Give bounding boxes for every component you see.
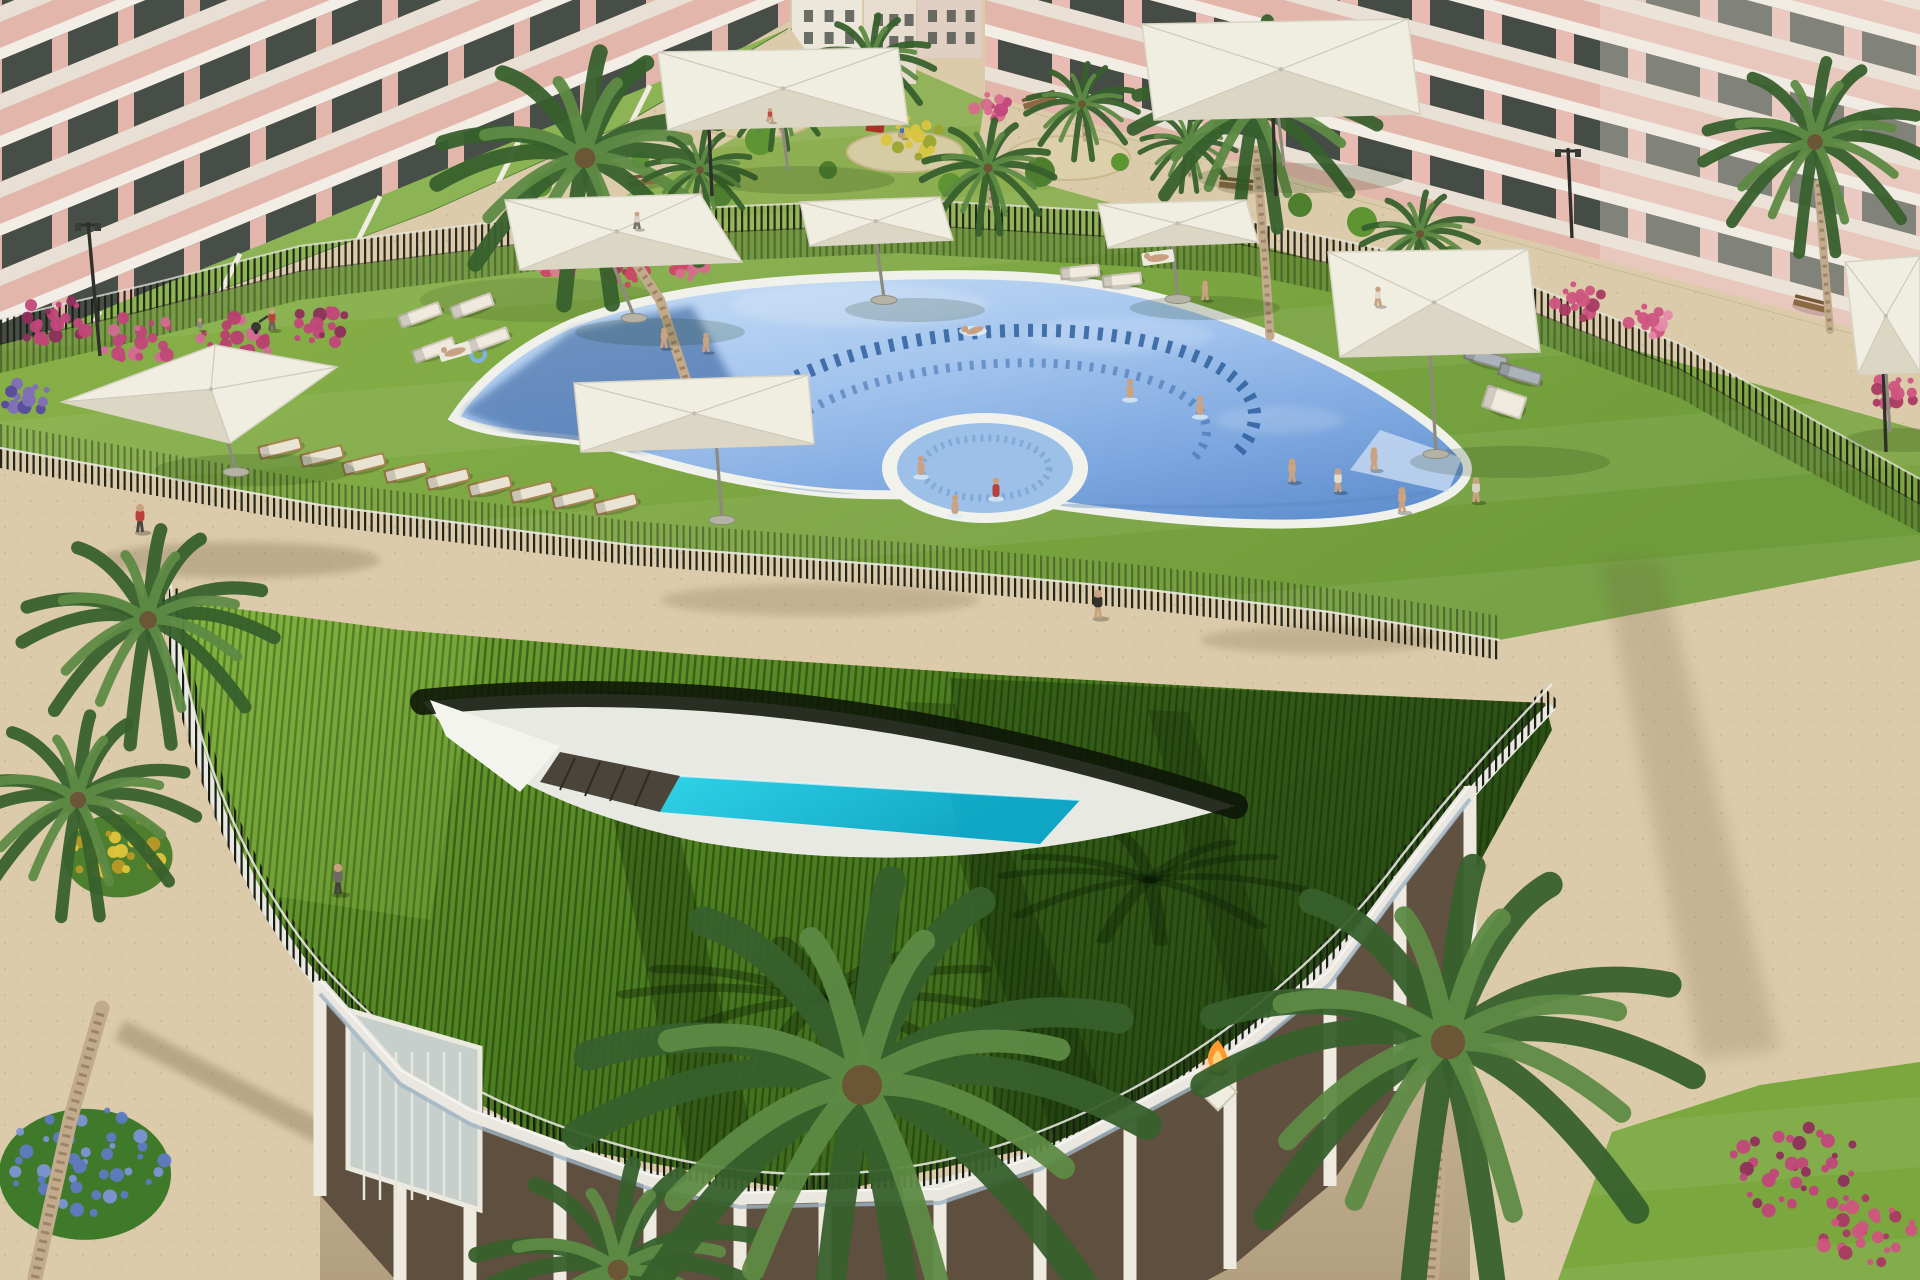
umbrella-base [871,296,897,305]
water-highlight [1215,406,1345,434]
umbrella-shadow [845,298,985,322]
scene-aerial-render [0,0,1920,1280]
umbrella-base [223,468,249,477]
umbrella-base [621,314,647,323]
water-highlight [1025,317,1215,353]
scene-stage [0,0,1920,1280]
garden-shrub [1288,193,1312,217]
umbrella-base [1165,295,1191,304]
umbrella-base [709,516,735,525]
umbrella-base [1423,450,1449,459]
umbrella-shadow [1195,163,1405,193]
facade-pillar [314,981,327,1196]
umbrella-shadow [155,454,355,486]
umbrella-shadow [575,318,745,346]
garden-shrub [1111,153,1129,171]
shadow-on-sand [100,542,380,578]
kids-pool [882,413,1088,523]
garden-shrub [1347,207,1377,237]
umbrella-shadow [705,166,895,194]
